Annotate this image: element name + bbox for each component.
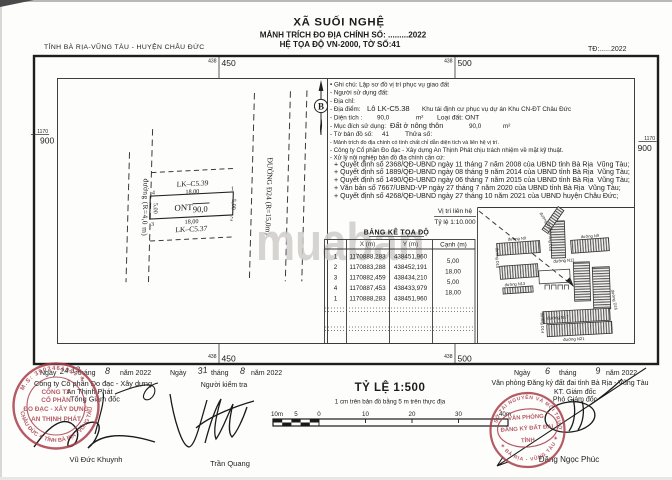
svg-text:9: 9 [595, 365, 602, 376]
svg-text:5,00: 5,00 [447, 258, 460, 265]
svg-text:10m: 10m [271, 411, 283, 418]
svg-text:- Mục đích sử dụng:Đất ở nông: - Mục đích sử dụng:Đất ở nông thôn90,0m² [330, 121, 510, 130]
svg-text:Y (m): Y (m) [403, 241, 419, 248]
svg-text:năm 2022: năm 2022 [251, 370, 282, 377]
svg-text:Tỷ lệ 1:10.000: Tỷ lệ 1:10.000 [434, 219, 476, 226]
svg-text:1: 1 [231, 186, 234, 192]
svg-text:TỶ LỆ 1:500: TỶ LỆ 1:500 [355, 381, 426, 394]
svg-text:Văn phòng Đăng ký đất đai tỉnh: Văn phòng Đăng ký đất đai tỉnh Bà Rịa - … [491, 378, 648, 387]
svg-text:Vũ Đức Khuynh: Vũ Đức Khuynh [70, 455, 123, 464]
svg-text:đường N13: đường N13 [505, 281, 526, 287]
svg-text:4: 4 [152, 190, 155, 196]
svg-text:MẢNH TRÍCH ĐO ĐỊA CHÍNH SỐ: ..: MẢNH TRÍCH ĐO ĐỊA CHÍNH SỐ: .........202… [260, 29, 427, 39]
svg-text:3: 3 [151, 222, 154, 228]
svg-text:+ Quyết định số 4268/QĐ-UBND n: + Quyết định số 4268/QĐ-UBND ngày 27 thá… [334, 191, 618, 200]
svg-text:438451,960: 438451,960 [394, 296, 428, 303]
svg-text:900: 900 [638, 143, 652, 153]
svg-text:4: 4 [334, 285, 338, 292]
svg-text:Đặng Ngọc Phúc: Đặng Ngọc Phúc [539, 455, 599, 464]
svg-text:18,00: 18,00 [445, 290, 461, 297]
svg-text:- Địa điểm:Lô LK-C5.38Khu tái: - Địa điểm:Lô LK-C5.38Khu tái định cư ph… [330, 104, 571, 113]
svg-text:90,0: 90,0 [193, 204, 208, 215]
svg-text:CÔNG TY: CÔNG TY [41, 387, 71, 396]
svg-text:năm 2022: năm 2022 [606, 370, 637, 377]
svg-text:đường D14: đường D14 [540, 313, 546, 334]
svg-text:5,00: 5,00 [152, 203, 159, 214]
svg-text:năm 2022: năm 2022 [120, 370, 151, 377]
svg-text:1170888,283: 1170888,283 [349, 296, 386, 303]
svg-text:6: 6 [545, 366, 550, 376]
svg-text:BẢNG KÊ TỌA ĐỘ: BẢNG KÊ TỌA ĐỘ [364, 228, 430, 237]
svg-text:1170887,453: 1170887,453 [349, 285, 386, 292]
svg-text:ONT: ONT [174, 202, 193, 213]
svg-text:450: 450 [222, 58, 236, 68]
svg-text:438434,210: 438434,210 [394, 275, 428, 282]
svg-text:500: 500 [458, 354, 472, 364]
svg-text:ĐO ĐẠC - XÂY DỰNG: ĐO ĐẠC - XÂY DỰNG [23, 404, 88, 413]
svg-text:đường N21: đường N21 [563, 336, 585, 342]
svg-text:+ Quyết định số 2368/QĐ-UBND n: + Quyết định số 2368/QĐ-UBND ngày 11 thá… [334, 159, 629, 168]
svg-text:+ Quyết định số 1889/QĐ-UBND n: + Quyết định số 1889/QĐ-UBND ngày 08 thá… [334, 167, 630, 176]
svg-text:3: 3 [334, 275, 338, 282]
svg-text:TỈNH: TỈNH [521, 437, 535, 445]
svg-text:5: 5 [294, 411, 298, 418]
svg-text:450: 450 [222, 354, 236, 364]
svg-text:438: 438 [208, 59, 217, 65]
svg-text:5,00: 5,00 [447, 279, 460, 286]
svg-text:20: 20 [409, 411, 416, 418]
svg-text:LK–C5.37: LK–C5.37 [175, 224, 207, 235]
svg-text:+ Quyết định số 1490/QĐ-UBND n: + Quyết định số 1490/QĐ-UBND ngày 06 thá… [334, 175, 630, 184]
svg-text:5,00: 5,00 [230, 199, 237, 210]
svg-text:438451,960: 438451,960 [394, 254, 428, 261]
svg-text:AN THỊNH PHÁT: AN THỊNH PHÁT [31, 414, 81, 423]
svg-text:VĂN PHÒNG: VĂN PHÒNG [508, 412, 545, 422]
svg-text:đường N9: đường N9 [508, 235, 527, 241]
svg-text:438433,979: 438433,979 [394, 285, 428, 292]
svg-text:1: 1 [334, 254, 338, 261]
svg-text:+ Văn bản số 7667/UBND-VP ngày: + Văn bản số 7667/UBND-VP ngày 27 tháng … [334, 183, 621, 192]
svg-text:1 cm trên bản đồ bằng 5 m trên: 1 cm trên bản đồ bằng 5 m trên thực địa [335, 399, 446, 406]
svg-text:438: 438 [444, 354, 453, 360]
svg-text:tháng: tháng [559, 370, 577, 377]
svg-text:X (m): X (m) [360, 241, 376, 248]
svg-text:8: 8 [240, 366, 245, 376]
svg-text:- Địa chỉ:: - Địa chỉ: [330, 97, 355, 105]
svg-text:- Công ty Cổ phần Đo đạc - Xây: - Công ty Cổ phần Đo đạc - Xây dựng An T… [330, 147, 564, 154]
svg-text:Ngày: Ngày [514, 370, 531, 377]
svg-text:18,00: 18,00 [445, 269, 461, 276]
svg-text:1170: 1170 [37, 129, 48, 135]
svg-text:438: 438 [444, 59, 453, 65]
svg-text:XÃ SUỐI NGHỆ: XÃ SUỐI NGHỆ [293, 15, 384, 29]
svg-text:tháng: tháng [211, 370, 229, 377]
svg-text:31: 31 [197, 365, 208, 376]
svg-text:đường D10: đường D10 [548, 231, 554, 252]
svg-text:30: 30 [455, 411, 462, 418]
svg-text:900: 900 [40, 136, 54, 146]
svg-text:Cạnh (m): Cạnh (m) [440, 242, 467, 249]
svg-text:B: B [318, 102, 324, 112]
svg-text:đường (R=4,0 m): đường (R=4,0 m) [140, 178, 151, 236]
svg-text:• Ghi chú: Lập sơ đồ vị trí ph: • Ghi chú: Lập sơ đồ vị trí phục vụ giao… [330, 80, 449, 89]
svg-text:- Người sử dụng đất:: - Người sử dụng đất: [330, 88, 389, 97]
svg-text:1170888,283: 1170888,283 [349, 254, 386, 261]
svg-text:LK–C5.39: LK–C5.39 [177, 178, 209, 189]
svg-text:1170: 1170 [644, 136, 655, 142]
svg-text:1170882,459: 1170882,459 [349, 275, 386, 282]
svg-text:438: 438 [208, 354, 217, 360]
svg-text:1170883,288: 1170883,288 [349, 264, 386, 271]
svg-text:8: 8 [105, 366, 110, 376]
svg-text:Trần Quang: Trần Quang [210, 459, 250, 468]
svg-text:TỈNH BÀ RỊA-VŨNG TÀU - HUYỆN: TỈNH BÀ RỊA-VŨNG TÀU - HUYỆN CHÂU ĐỨC [44, 42, 205, 51]
svg-text:TĐ:......2022: TĐ:......2022 [588, 46, 627, 53]
svg-text:0: 0 [317, 411, 321, 418]
svg-text:Người kiểm tra: Người kiểm tra [201, 381, 248, 389]
svg-text:HỆ TỌA ĐỘ VN-2000, TỜ SỐ:41: HỆ TỌA ĐỘ VN-2000, TỜ SỐ:41 [280, 39, 401, 49]
svg-text:500: 500 [458, 58, 472, 68]
svg-text:1: 1 [334, 296, 338, 303]
svg-text:438452,191: 438452,191 [394, 264, 428, 271]
svg-text:Ngày: Ngày [170, 370, 187, 377]
svg-text:KT. Giám đốc: KT. Giám đốc [554, 387, 597, 396]
svg-text:- Mảnh trích đo địa chính có t: - Mảnh trích đo địa chính có tính chất c… [330, 139, 499, 146]
svg-text:2: 2 [334, 264, 338, 271]
svg-text:đường N11: đường N11 [553, 257, 575, 264]
svg-text:- Tờ bản đồ số:41Thửa số:: - Tờ bản đồ số:41Thửa số: [330, 129, 432, 138]
svg-text:2: 2 [230, 216, 233, 222]
svg-text:đường D16: đường D16 [610, 289, 619, 311]
svg-text:Tổng Giám đốc: Tổng Giám đốc [70, 395, 120, 404]
svg-text:10: 10 [362, 411, 369, 418]
svg-text:đường D10: đường D10 [495, 248, 501, 269]
svg-text:Vị trí liên hệ: Vị trí liên hệ [438, 208, 473, 215]
